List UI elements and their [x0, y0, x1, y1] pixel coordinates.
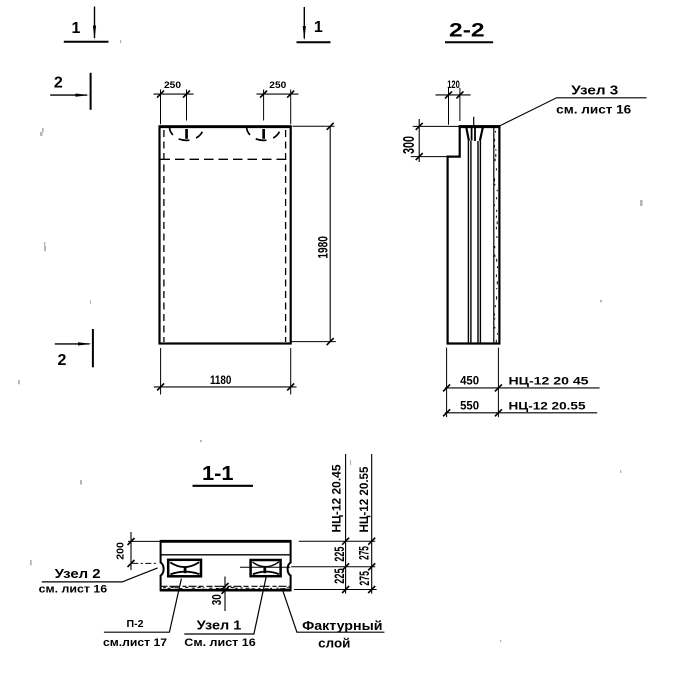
svg-text:2: 2	[58, 352, 67, 369]
svg-text:120: 120	[447, 79, 460, 91]
svg-text:Узел 3: Узел 3	[571, 84, 618, 98]
svg-text:450: 450	[460, 374, 479, 388]
svg-text:1980: 1980	[315, 236, 331, 259]
svg-text:НЦ-12 20.55: НЦ-12 20.55	[357, 466, 371, 532]
svg-text:см. лист 16: см. лист 16	[556, 105, 631, 117]
svg-text:НЦ-12 20 45: НЦ-12 20 45	[509, 376, 589, 388]
svg-text:см. лист 16: см. лист 16	[39, 584, 108, 596]
svg-text:1: 1	[314, 19, 323, 36]
svg-text:300: 300	[401, 136, 418, 154]
svg-text:275: 275	[356, 571, 372, 586]
svg-text:225: 225	[331, 546, 347, 561]
svg-text:250: 250	[164, 80, 181, 91]
svg-text:См. лист 16: См. лист 16	[184, 637, 255, 649]
svg-text:НЦ-12 20.55: НЦ-12 20.55	[509, 401, 586, 413]
svg-text:П-2: П-2	[127, 618, 144, 630]
svg-text:НЦ-12 20.45: НЦ-12 20.45	[330, 464, 344, 532]
svg-text:550: 550	[460, 399, 479, 413]
svg-text:275: 275	[355, 546, 371, 560]
svg-text:2-2: 2-2	[449, 20, 485, 41]
svg-text:2: 2	[54, 75, 63, 92]
svg-text:1: 1	[72, 20, 81, 37]
svg-text:Фактурный: Фактурный	[302, 619, 382, 633]
svg-text:Узел 2: Узел 2	[55, 567, 101, 581]
svg-text:см.лист 17: см.лист 17	[103, 637, 167, 649]
svg-text:250: 250	[269, 80, 286, 91]
svg-text:Узел 1: Узел 1	[197, 619, 242, 633]
svg-text:225: 225	[331, 568, 347, 584]
svg-text:1180: 1180	[210, 375, 232, 387]
svg-text:200: 200	[114, 542, 126, 560]
svg-text:1-1: 1-1	[202, 463, 234, 485]
svg-text:30: 30	[210, 594, 224, 605]
svg-text:слой: слой	[318, 637, 350, 651]
